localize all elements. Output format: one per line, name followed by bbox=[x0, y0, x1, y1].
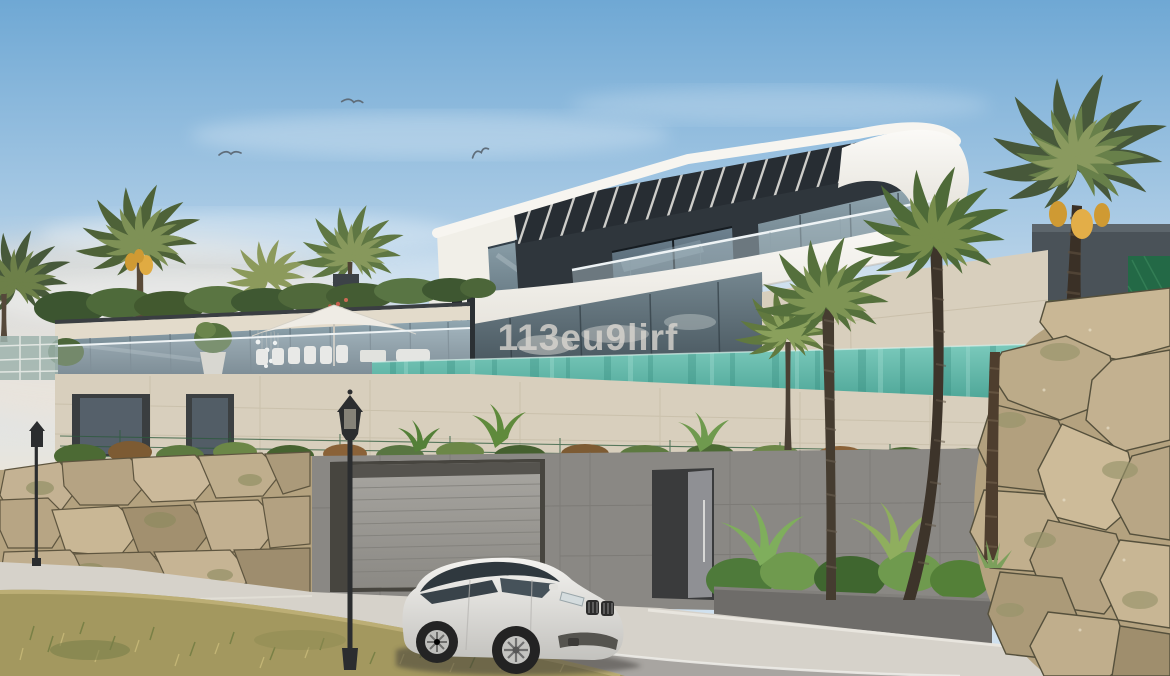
car-front-wheel bbox=[492, 626, 540, 674]
car-rear-wheel bbox=[416, 621, 458, 663]
villa-render: 113eu9lirf bbox=[0, 0, 1170, 676]
watermark-text: 113eu9lirf bbox=[498, 317, 679, 358]
entry-door-recess bbox=[652, 468, 714, 600]
left-glass-annex bbox=[0, 336, 58, 380]
car-mirror bbox=[549, 584, 558, 590]
render-canvas: 113eu9lirf bbox=[0, 0, 1170, 676]
